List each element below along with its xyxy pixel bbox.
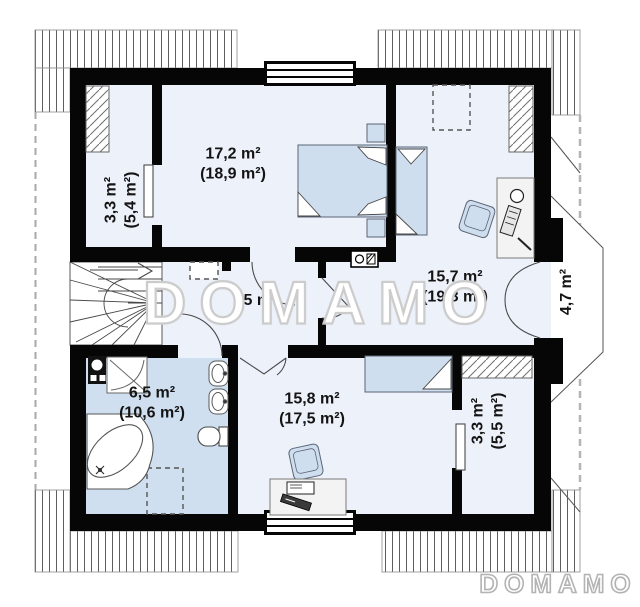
room-floor-area: (5,4 m²) bbox=[122, 172, 142, 229]
wall-pillar-balcony-top bbox=[551, 218, 563, 262]
room-label-wardrobe-top: 3,3 m² (5,4 m²) bbox=[102, 172, 143, 229]
partition-hall-top-right bbox=[295, 247, 396, 262]
bath-faucet bbox=[98, 468, 102, 472]
wall-right-upper bbox=[534, 85, 551, 262]
room-floor-area: (17,5 m²) bbox=[279, 410, 345, 430]
desk-right bbox=[497, 178, 534, 258]
office-chair-bottom bbox=[288, 443, 324, 481]
bathtub bbox=[78, 414, 153, 489]
room-area: 3,3 m² bbox=[469, 393, 489, 450]
window-top bbox=[264, 61, 356, 86]
room-area: 3,3 m² bbox=[102, 172, 122, 229]
room-label-wardrobe-bottom: 3,3 m² (5,5 m²) bbox=[469, 393, 510, 450]
single-bed-bottom bbox=[365, 356, 452, 392]
sink bbox=[209, 361, 228, 386]
wardrobe-icon-top-left bbox=[86, 86, 109, 152]
nightstand bbox=[367, 124, 385, 142]
room-label-bedroom-top: 17,2 m² (18,9 m²) bbox=[200, 145, 266, 186]
sink bbox=[209, 389, 228, 414]
partition-bathroom-right bbox=[228, 358, 238, 514]
door-leaf-wardrobe-top bbox=[144, 165, 153, 217]
wall-right-lower bbox=[534, 338, 551, 514]
partition-wardrobe-top bbox=[152, 85, 162, 165]
desk-bottom bbox=[270, 479, 346, 515]
washing-machine bbox=[88, 356, 106, 384]
room-area: 4,7 m² bbox=[557, 269, 577, 315]
brand-logo: DOMAMO bbox=[479, 569, 636, 600]
door-leaf-wardrobe-bottom bbox=[456, 424, 465, 470]
wardrobe-icon-top-right bbox=[509, 86, 533, 152]
room-area: 15,8 m² bbox=[279, 390, 345, 410]
wall-left-upper bbox=[70, 85, 86, 262]
room-label-bathroom: 6,5 m² (10,6 m²) bbox=[119, 384, 185, 425]
partition-wardrobe-bottom-1 bbox=[452, 358, 462, 410]
room-floor-area: (18,9 m²) bbox=[200, 165, 266, 185]
wall-left-lower bbox=[70, 345, 86, 531]
desk-lamp bbox=[511, 190, 524, 203]
room-label-balcony: 4,7 m² bbox=[557, 269, 577, 315]
room-floor-area: (5,5 m²) bbox=[489, 393, 509, 450]
wall-pillar-balcony-bottom bbox=[551, 338, 563, 384]
room-area: 17,2 m² bbox=[200, 145, 266, 165]
watermark: DOMAMO bbox=[143, 269, 501, 338]
nightstand bbox=[367, 219, 385, 237]
single-bed-right bbox=[396, 147, 427, 235]
partition-hall-top-left bbox=[86, 247, 250, 262]
toilet bbox=[198, 427, 228, 446]
partition-wardrobe-bottom-2 bbox=[452, 468, 462, 514]
partition-hall-bottom-2 bbox=[222, 345, 238, 358]
room-label-bedroom-bottom: 15,8 m² (17,5 m²) bbox=[279, 390, 345, 431]
floor-plan-canvas: 3,3 m² (5,4 m²) 17,2 m² (18,9 m²) 15,7 m… bbox=[0, 0, 640, 607]
boiler-icon bbox=[351, 251, 378, 267]
room-floor-area: (10,6 m²) bbox=[119, 404, 185, 424]
room-area: 6,5 m² bbox=[119, 384, 185, 404]
wardrobe-icon-bottom-right bbox=[462, 356, 532, 378]
partition-hall-bottom-1 bbox=[70, 345, 178, 358]
